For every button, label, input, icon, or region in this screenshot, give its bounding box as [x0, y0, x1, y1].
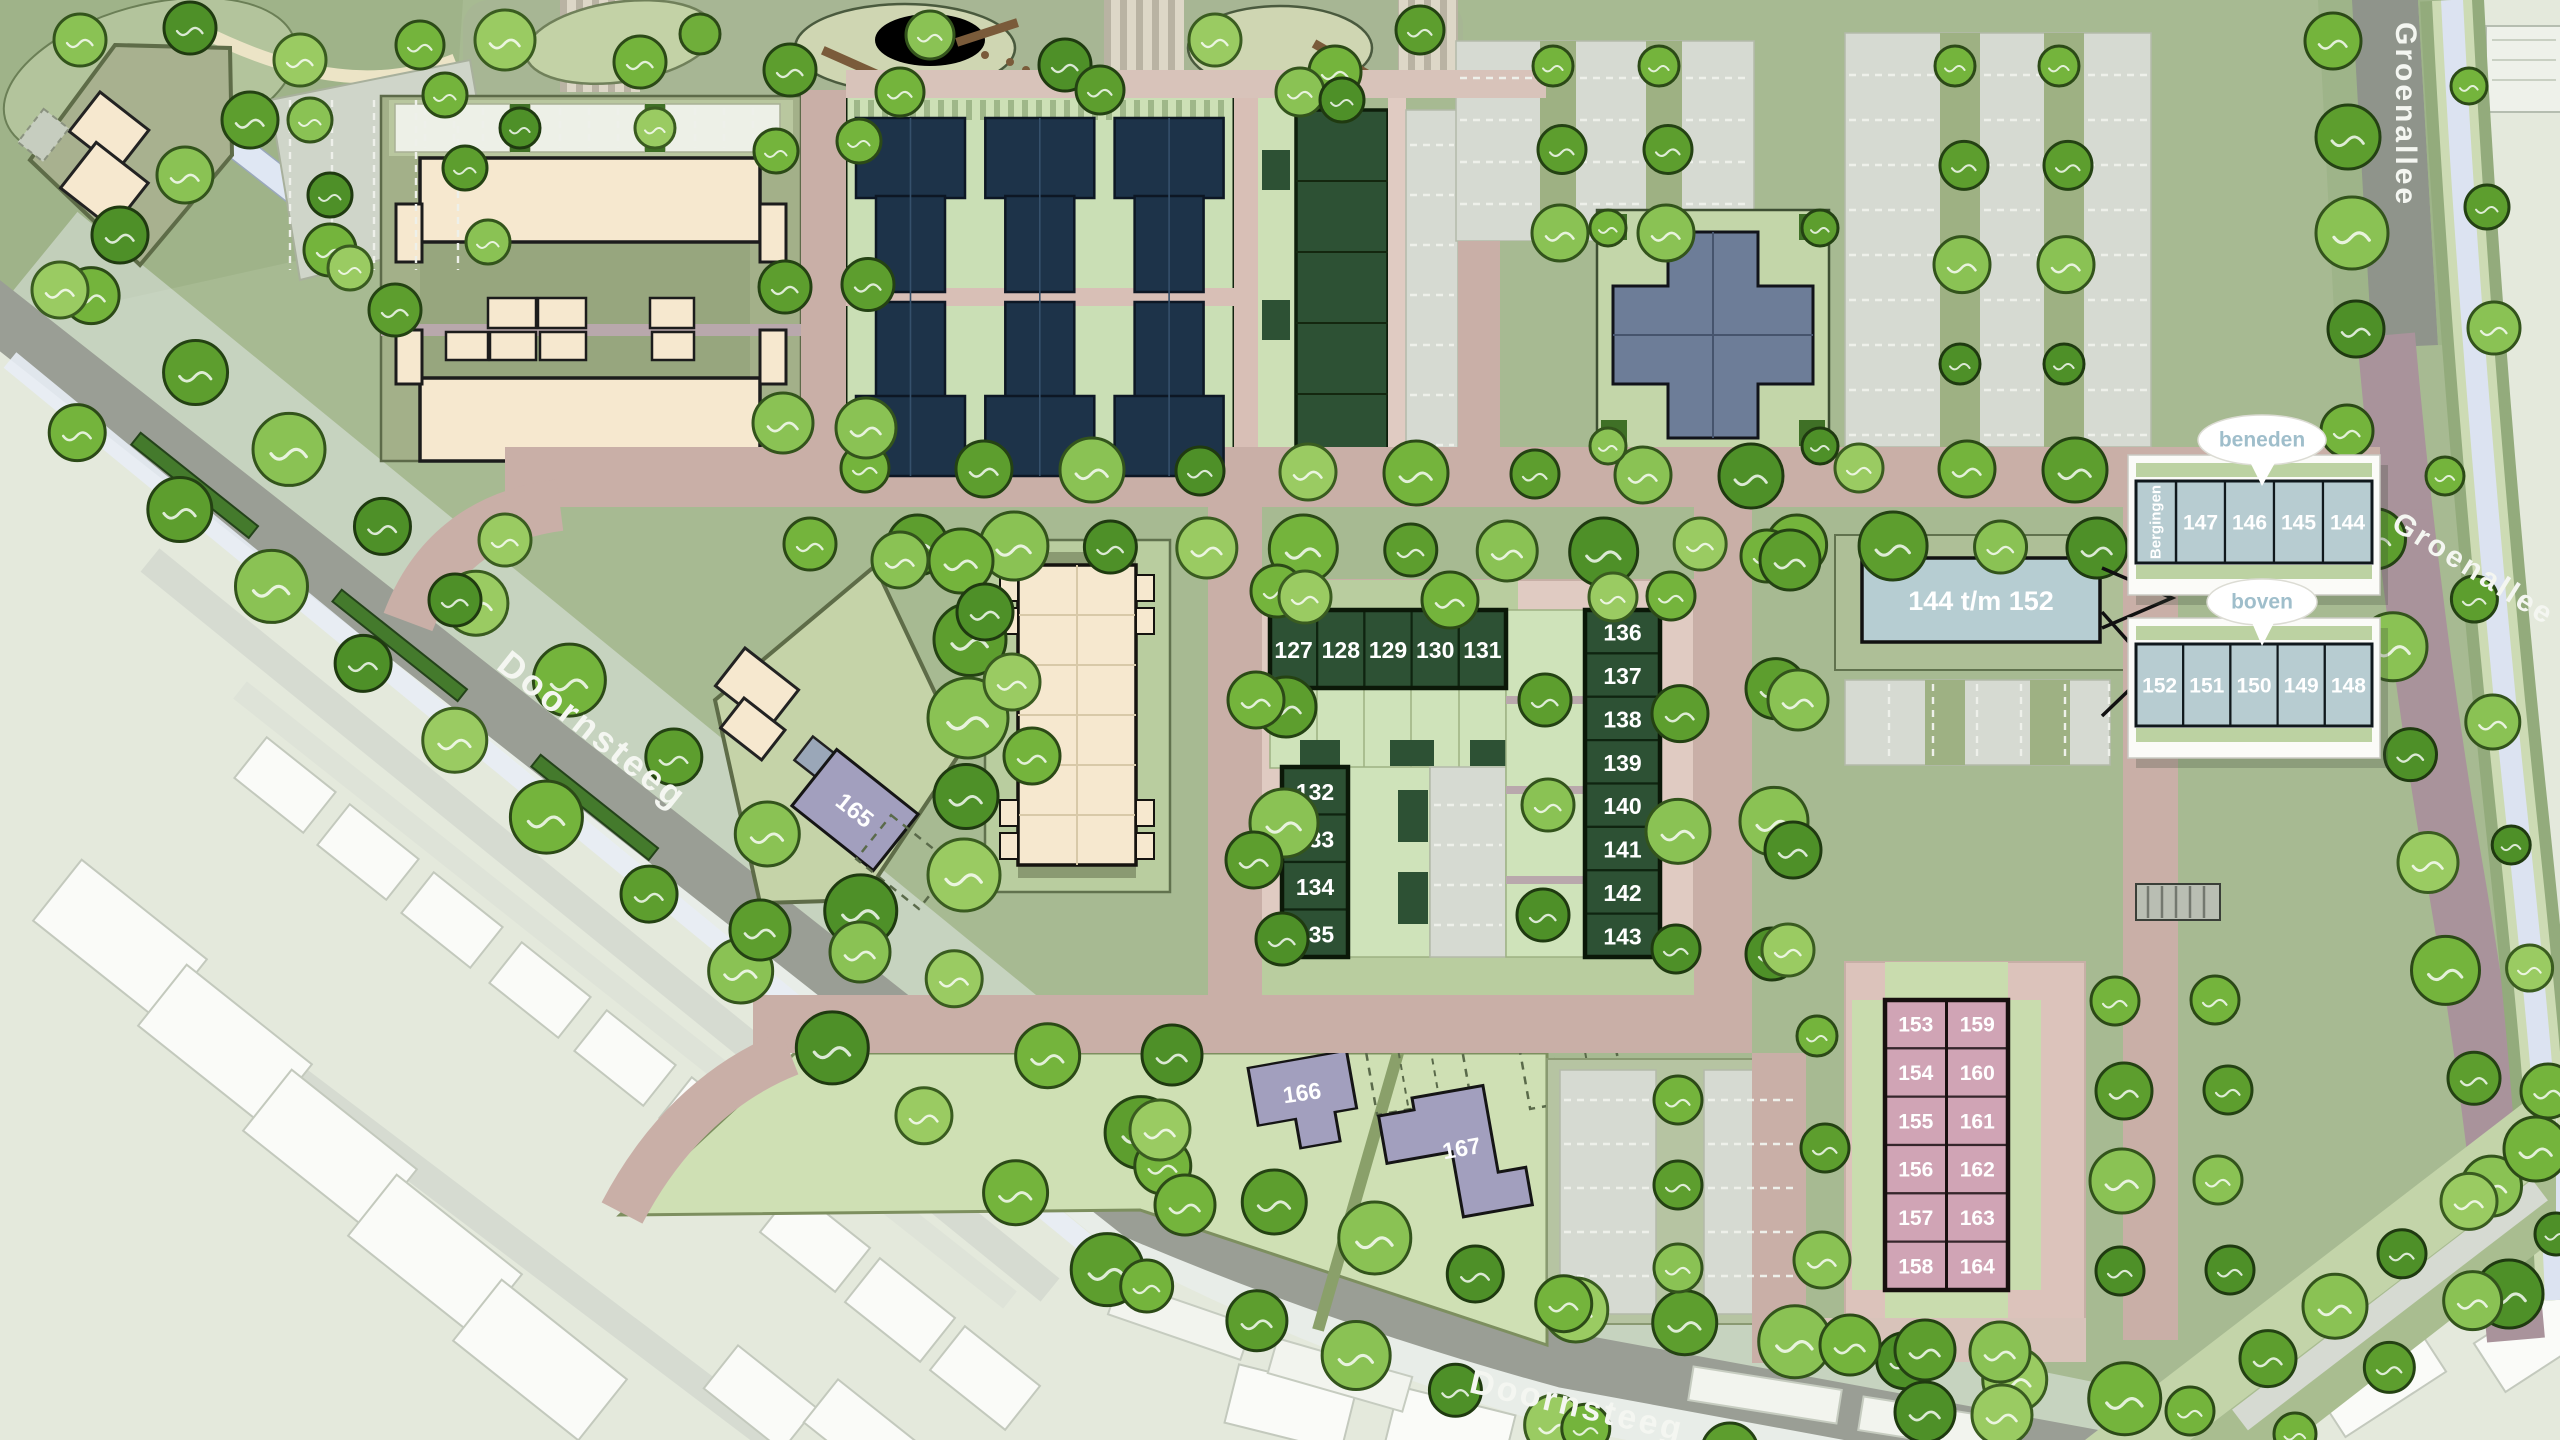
tree-icon: [1654, 1161, 1702, 1209]
tree-icon: [2096, 1247, 2144, 1295]
tree-icon: [2321, 405, 2373, 457]
tree-icon: [54, 14, 106, 66]
tree-icon: [1280, 444, 1336, 500]
verge: [1500, 241, 1597, 447]
unit-number: 147: [2183, 512, 2218, 535]
tree-icon: [1384, 441, 1448, 505]
unit-number: 150: [2236, 675, 2271, 698]
tree-icon: [148, 478, 212, 542]
storage-label: Bergingen: [2148, 485, 2165, 559]
tree-icon: [759, 261, 811, 313]
unit-143[interactable]: 143: [1585, 914, 1660, 957]
tree-icon: [253, 413, 325, 485]
tree-icon: [1538, 126, 1586, 174]
unit-number: 164: [1960, 1255, 1995, 1278]
tree-icon: [1533, 46, 1573, 86]
block-153-164: 153154155156157158 159160161162163164: [1845, 962, 2085, 1340]
tree-icon: [1972, 1385, 2032, 1440]
unit-number: 156: [1898, 1159, 1933, 1182]
unit-147[interactable]: 147: [2176, 481, 2225, 563]
inset-panel-upper-floor[interactable]: 152151150149148: [2128, 618, 2380, 758]
tree-icon: [157, 147, 213, 203]
unit-number: 139: [1603, 750, 1641, 776]
tree-icon: [1590, 428, 1626, 464]
storage-cell[interactable]: Bergingen: [2136, 481, 2176, 563]
tree-icon: [1940, 141, 1988, 189]
unit-number: 127: [1274, 637, 1312, 663]
callout-boven-label: boven: [2231, 591, 2293, 614]
tree-icon: [2039, 46, 2079, 86]
tree-icon: [984, 1161, 1048, 1225]
tree-icon: [906, 11, 954, 59]
tree-icon: [164, 2, 216, 54]
unit-138[interactable]: 138: [1585, 697, 1660, 740]
unit-number: 145: [2281, 512, 2316, 535]
unit-151[interactable]: 151: [2183, 644, 2230, 726]
tree-icon: [1276, 68, 1324, 116]
block-cream-slabs: [381, 96, 801, 461]
unit-number: 130: [1416, 637, 1454, 663]
unit-number: 160: [1960, 1062, 1995, 1085]
navy-house-clusters: [856, 118, 1224, 476]
tree-icon: [2303, 1274, 2367, 1338]
tree-icon: [2398, 833, 2458, 893]
tree-icon: [956, 441, 1012, 497]
unit-number: 153: [1898, 1014, 1933, 1037]
tree-icon: [1532, 205, 1588, 261]
tree-icon: [354, 498, 410, 554]
tree-icon: [872, 532, 928, 588]
tree-icon: [836, 398, 896, 458]
tree-icon: [926, 951, 982, 1007]
tree-icon: [369, 284, 421, 336]
tree-icon: [1511, 450, 1559, 498]
unit-159[interactable]: 159: [1947, 1000, 2009, 1048]
tree-icon: [1654, 1244, 1702, 1292]
unit-number: 155: [1898, 1110, 1933, 1133]
tree-icon: [1654, 1076, 1702, 1124]
tree-icon: [2204, 1066, 2252, 1114]
tree-icon: [1820, 1315, 1880, 1375]
unit-162[interactable]: 162: [1947, 1145, 2009, 1193]
tree-icon: [92, 207, 148, 263]
unit-number: 149: [2284, 675, 2319, 698]
tree-icon: [2316, 105, 2380, 169]
tree-icon: [1762, 924, 1814, 976]
unit-number: 157: [1898, 1207, 1933, 1230]
unit-number: 161: [1960, 1110, 1995, 1133]
tree-icon: [896, 1088, 952, 1144]
tree-icon: [796, 1012, 868, 1084]
tree-icon: [1155, 1175, 1215, 1235]
tree-icon: [635, 108, 675, 148]
tree-icon: [475, 10, 535, 70]
tree-icon: [2038, 237, 2094, 293]
tree-icon: [2364, 1342, 2414, 1392]
tree-icon: [1142, 1025, 1202, 1085]
tree-icon: [1477, 521, 1537, 581]
tree-icon: [1589, 573, 1637, 621]
tree-icon: [328, 246, 372, 290]
tree-icon: [1536, 1276, 1592, 1332]
tree-icon: [2504, 1117, 2560, 1181]
tree-icon: [614, 36, 666, 88]
parking-northeast: [1845, 33, 2151, 447]
unit-number: 128: [1322, 637, 1361, 663]
tree-icon: [2166, 1387, 2214, 1435]
unit-number: 154: [1898, 1062, 1933, 1085]
tree-icon: [1339, 1202, 1411, 1274]
unit-number: 144: [2330, 512, 2365, 535]
street-label-groenallee-north: Groenallee: [2389, 22, 2422, 207]
unit-153[interactable]: 153: [1885, 1000, 1947, 1048]
tree-icon: [2378, 1230, 2426, 1278]
unit-148[interactable]: 148: [2325, 644, 2372, 726]
tree-icon: [753, 393, 813, 453]
unit-number: 142: [1603, 880, 1641, 906]
tree-icon: [1279, 571, 1331, 623]
tree-icon: [2206, 1246, 2254, 1294]
unit-number: 141: [1603, 837, 1642, 863]
tree-icon: [288, 98, 332, 142]
unit-number: 148: [2331, 675, 2366, 698]
tree-icon: [2444, 1272, 2502, 1330]
unit-number: 162: [1960, 1159, 1995, 1182]
tree-icon: [2492, 826, 2530, 864]
tree-icon: [1130, 1100, 1190, 1160]
unit-155[interactable]: 155: [1885, 1097, 1947, 1145]
tree-icon: [1647, 572, 1695, 620]
site-plan-canvas: 165 1271: [0, 0, 2560, 1440]
unit-number: 143: [1603, 923, 1641, 949]
tree-icon: [1652, 925, 1700, 973]
unit-number: 152: [2142, 675, 2177, 698]
tree-icon: [2426, 457, 2464, 495]
tree-icon: [1422, 572, 1478, 628]
unit-128[interactable]: 128: [1317, 610, 1364, 688]
tree-icon: [837, 119, 881, 163]
tree-icon: [830, 922, 890, 982]
tree-icon: [1638, 205, 1694, 261]
unit-number: 136: [1603, 620, 1641, 646]
tree-icon: [1447, 1246, 1503, 1302]
unit-164[interactable]: 164: [1947, 1242, 2009, 1290]
unit-149[interactable]: 149: [2278, 644, 2325, 726]
tree-icon: [2274, 1413, 2316, 1440]
tree-icon: [1177, 518, 1237, 578]
tree-icon: [1396, 6, 1444, 54]
unit-number: 146: [2232, 512, 2267, 535]
tree-icon: [735, 802, 799, 866]
unit-161[interactable]: 161: [1947, 1097, 2009, 1145]
tree-icon: [308, 173, 352, 217]
unit-137[interactable]: 137: [1585, 653, 1660, 696]
tree-icon: [2091, 977, 2139, 1025]
tree-icon: [730, 900, 790, 960]
tree-icon: [1226, 832, 1282, 888]
tree-icon: [1322, 1322, 1390, 1390]
block-rowhouse-strip: [1234, 96, 1458, 479]
callout-beneden-label: beneden: [2219, 429, 2305, 452]
tree-icon: [842, 259, 894, 311]
tree-icon: [2090, 1149, 2154, 1213]
unit-142[interactable]: 142: [1585, 870, 1660, 913]
tree-icon: [1939, 441, 1995, 497]
unit-158[interactable]: 158: [1885, 1242, 1947, 1290]
rowhouses-unnumbered: [1296, 110, 1388, 465]
tree-icon: [2448, 1052, 2500, 1104]
tree-icon: [1940, 344, 1980, 384]
tree-icon: [235, 550, 307, 622]
unit-number: 159: [1960, 1014, 1995, 1037]
unit-150[interactable]: 150: [2230, 644, 2277, 726]
tree-icon: [1227, 1291, 1287, 1351]
tree-icon: [1802, 210, 1838, 246]
tree-icon: [1934, 237, 1990, 293]
tree-icon: [2194, 1156, 2242, 1204]
tree-icon: [1076, 66, 1124, 114]
tree-icon: [32, 262, 88, 318]
tree-icon: [479, 514, 531, 566]
tree-icon: [1590, 210, 1626, 246]
block-middle-apartment: [985, 540, 1170, 892]
tree-icon: [1797, 1016, 1837, 1056]
unit-145[interactable]: 145: [2274, 481, 2323, 563]
inset-panel-ground-floor[interactable]: 147146145144 Bergingen: [2128, 455, 2380, 595]
unit-146[interactable]: 146: [2225, 481, 2274, 563]
block-cross-building: [1597, 210, 1829, 450]
unit-163[interactable]: 163: [1947, 1193, 2009, 1241]
tree-icon: [1639, 46, 1679, 86]
tree-icon: [1256, 913, 1308, 965]
tree-icon: [1835, 444, 1883, 492]
tree-icon: [1652, 686, 1708, 742]
tree-icon: [1228, 672, 1284, 728]
tree-icon: [1004, 728, 1060, 784]
tree-icon: [429, 574, 481, 626]
tree-icon: [928, 839, 1000, 911]
tree-icon: [1970, 1322, 2030, 1382]
tree-icon: [466, 220, 510, 264]
tree-icon: [1242, 1170, 1306, 1234]
unit-160[interactable]: 160: [1947, 1048, 2009, 1096]
tree-icon: [2328, 301, 2384, 357]
tree-icon: [1189, 14, 1241, 66]
tree-icon: [1765, 822, 1821, 878]
tree-icon: [510, 781, 582, 853]
tree-icon: [1975, 521, 2027, 573]
tree-icon: [2043, 438, 2107, 502]
unit-134[interactable]: 134: [1282, 862, 1348, 910]
tree-icon: [1935, 46, 1975, 86]
apartment-144-152-label: 144 t/m 152: [1908, 586, 2054, 616]
tree-icon: [1176, 447, 1224, 495]
tree-icon: [2521, 1064, 2560, 1118]
tree-icon: [396, 21, 444, 69]
tree-icon: [754, 129, 798, 173]
unit-157[interactable]: 157: [1885, 1193, 1947, 1241]
tree-icon: [1385, 524, 1437, 576]
unit-156[interactable]: 156: [1885, 1145, 1947, 1193]
tree-icon: [2191, 976, 2239, 1024]
tree-icon: [49, 405, 105, 461]
tree-icon: [423, 708, 487, 772]
tree-icon: [1802, 428, 1838, 464]
tree-icon: [423, 73, 467, 117]
tree-icon: [784, 518, 836, 570]
tree-icon: [222, 92, 278, 148]
unit-129[interactable]: 129: [1364, 610, 1411, 688]
tree-icon: [1644, 126, 1692, 174]
tree-icon: [1895, 1320, 1955, 1380]
tree-icon: [2451, 68, 2487, 104]
tree-icon: [764, 44, 816, 96]
tree-icon: [2385, 729, 2437, 781]
unit-number: 140: [1603, 793, 1641, 819]
tree-icon: [1522, 779, 1574, 831]
tree-icon: [2441, 1173, 2497, 1229]
unit-152[interactable]: 152: [2136, 644, 2183, 726]
tree-icon: [500, 108, 540, 148]
tree-icon: [2316, 197, 2388, 269]
tree-icon: [2067, 518, 2127, 578]
unit-number: 129: [1369, 637, 1407, 663]
tree-icon: [1646, 799, 1710, 863]
tree-icon: [1519, 674, 1571, 726]
tree-icon: [984, 654, 1040, 710]
tree-icon: [2507, 945, 2553, 991]
tree-icon: [957, 584, 1013, 640]
tree-icon: [1517, 889, 1569, 941]
unit-139[interactable]: 139: [1585, 740, 1660, 783]
tree-icon: [274, 34, 326, 86]
tree-icon: [2096, 1063, 2152, 1119]
tree-icon: [2465, 185, 2509, 229]
tree-icon: [1674, 518, 1726, 570]
tree-icon: [2412, 936, 2480, 1004]
tree-icon: [2468, 302, 2520, 354]
tree-icon: [1060, 438, 1124, 502]
tree-icon: [1653, 1291, 1717, 1355]
unit-number: 158: [1898, 1255, 1933, 1278]
tree-icon: [876, 68, 924, 116]
unit-number: 151: [2189, 675, 2224, 698]
tree-icon: [1320, 78, 1364, 122]
tree-icon: [1768, 670, 1828, 730]
site-plan-map: 165 1271: [0, 0, 2560, 1440]
block-127-143: 127128129130131 132133134135 13613713813…: [1245, 580, 1694, 995]
tree-icon: [2305, 13, 2361, 69]
tree-icon: [164, 341, 228, 405]
tree-icon: [2240, 1331, 2296, 1387]
tree-icon: [335, 635, 391, 691]
tree-icon: [2044, 344, 2084, 384]
tree-icon: [1084, 521, 1136, 573]
unit-number: 163: [1960, 1207, 1995, 1230]
tree-icon: [1801, 1124, 1849, 1172]
tree-icon: [1719, 444, 1783, 508]
tree-icon: [1121, 1260, 1173, 1312]
unit-number: 137: [1603, 663, 1641, 689]
tree-icon: [443, 146, 487, 190]
unit-number: 134: [1296, 874, 1335, 900]
unit-144[interactable]: 144: [2323, 481, 2372, 563]
tree-icon: [2089, 1363, 2161, 1435]
tree-icon: [621, 866, 677, 922]
tree-icon: [1859, 512, 1927, 580]
unit-number: 131: [1463, 637, 1502, 663]
unit-166-label: 166: [1281, 1077, 1323, 1108]
tree-icon: [934, 765, 998, 829]
tree-icon: [1895, 1382, 1955, 1440]
unit-154[interactable]: 154: [1885, 1048, 1947, 1096]
tree-icon: [2466, 695, 2520, 749]
tree-icon: [1760, 530, 1820, 590]
unit-number: 138: [1603, 706, 1642, 732]
tree-icon: [1794, 1232, 1850, 1288]
tree-icon: [2044, 141, 2092, 189]
tree-icon: [1016, 1024, 1080, 1088]
